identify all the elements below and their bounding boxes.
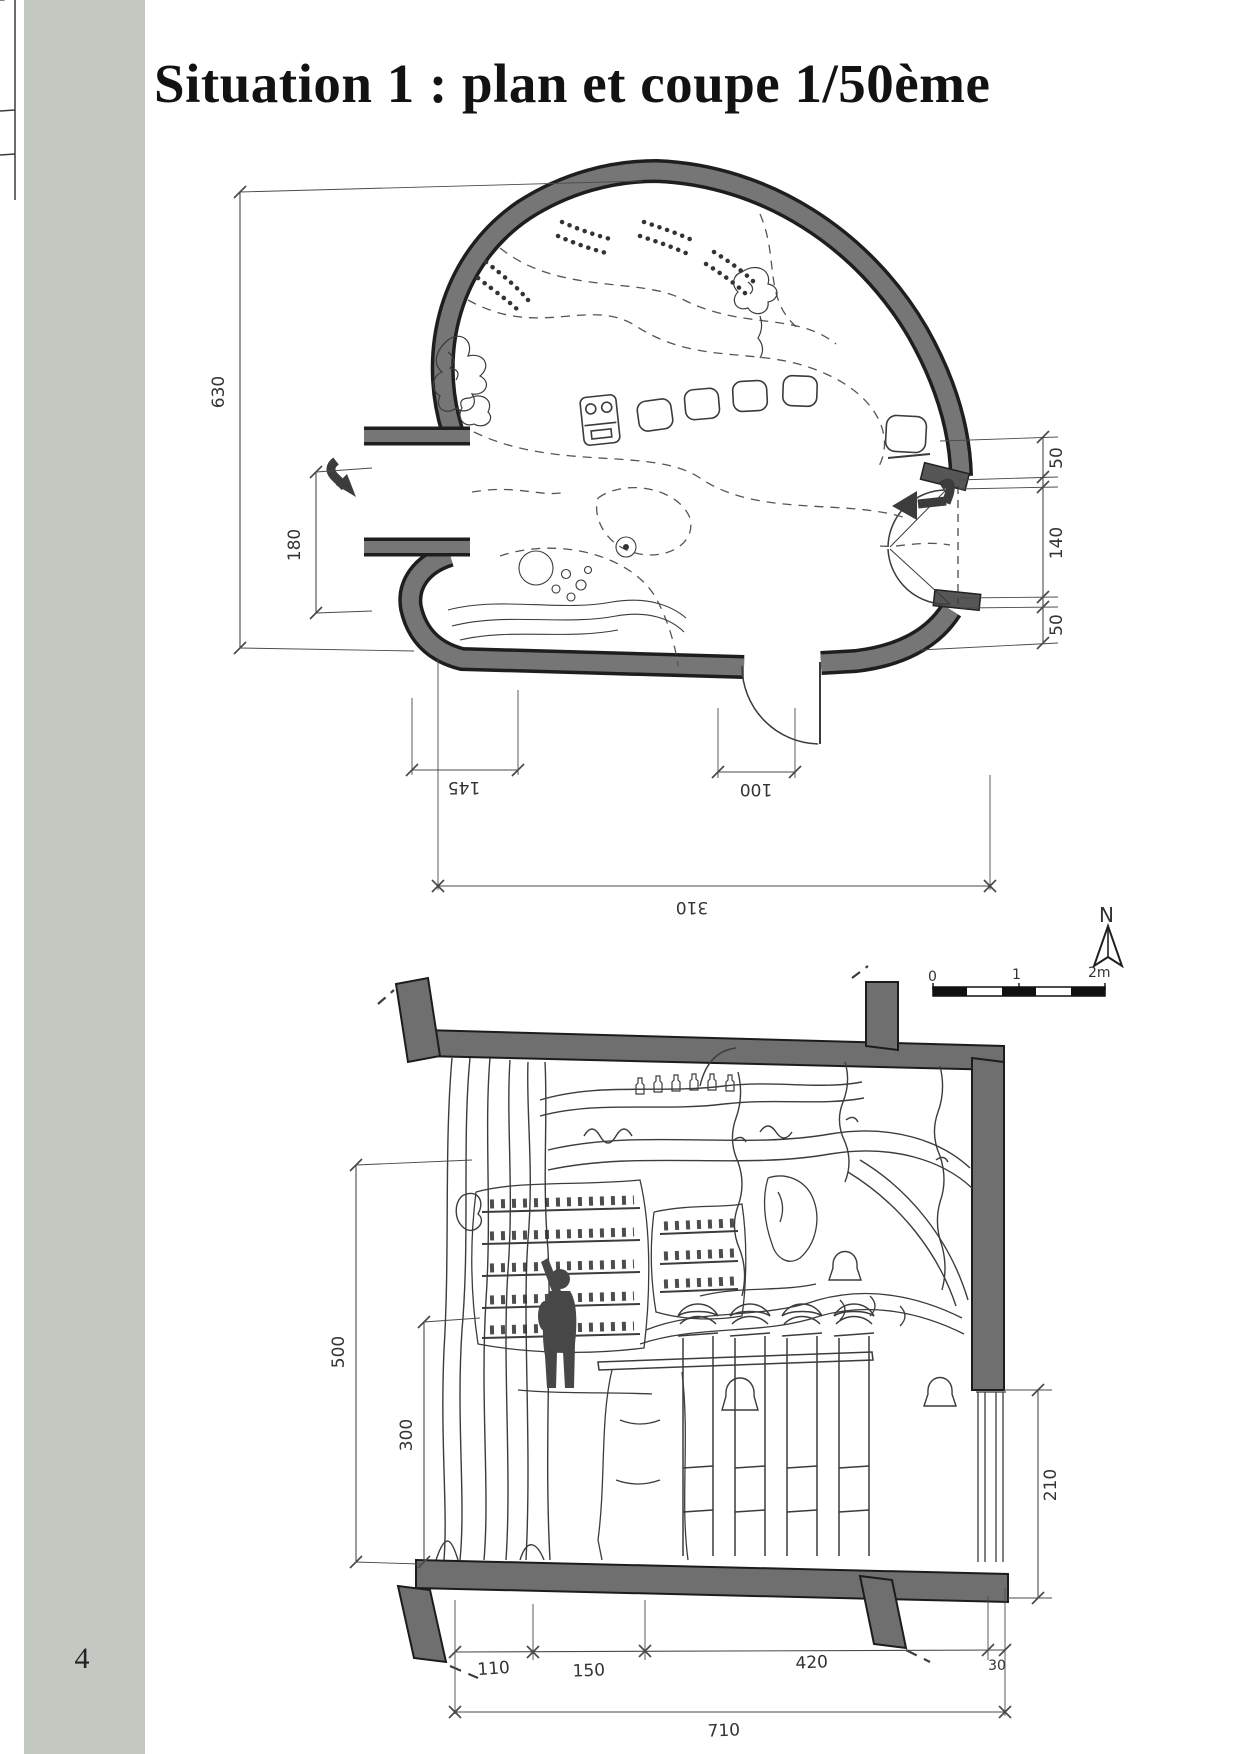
plan-cobble-dots bbox=[478, 222, 756, 312]
architectural-drawing: 630 180 50 140 50 145 100 310 N bbox=[0, 0, 1241, 1754]
plan-dim-140: 140 bbox=[1047, 527, 1067, 559]
section-dim-500: 500 bbox=[329, 1336, 349, 1368]
plan-dim-50-top: 50 bbox=[1047, 447, 1067, 469]
section-branches bbox=[540, 1048, 972, 1306]
plan-dim-310: 310 bbox=[676, 897, 708, 917]
section-drawing: 500 300 210 110 150 420 30 710 bbox=[0, 0, 1061, 1742]
plan-plant-right bbox=[734, 268, 777, 358]
section-dim-110: 110 bbox=[477, 1658, 511, 1680]
section-right-window bbox=[976, 1392, 1006, 1562]
plan-dimensions bbox=[234, 181, 1058, 892]
section-bar-stools bbox=[0, 0, 874, 1556]
scale-two-m: 2m bbox=[1088, 965, 1111, 981]
plan-dim-180: 180 bbox=[285, 529, 305, 561]
plan-wall-fill bbox=[410, 171, 961, 667]
plan-dim-100: 100 bbox=[740, 779, 772, 799]
plan-dimension-labels: 630 180 50 140 50 145 100 310 bbox=[209, 376, 1067, 917]
north-arrow-icon: N bbox=[1094, 903, 1122, 966]
section-dim-150: 150 bbox=[572, 1660, 605, 1681]
section-shelves bbox=[472, 1180, 746, 1352]
plan-dim-630: 630 bbox=[209, 376, 229, 408]
section-dim-420: 420 bbox=[795, 1652, 828, 1674]
section-ground-line bbox=[518, 1390, 652, 1394]
plan-dim-50-bottom: 50 bbox=[1047, 614, 1067, 636]
document-page: 4 Situation 1 : plan et coupe 1/50ème bbox=[0, 0, 1241, 1754]
human-figure bbox=[538, 1258, 576, 1388]
plan-right-entrance bbox=[888, 463, 981, 611]
plan-entry-arrow-left bbox=[331, 461, 356, 497]
north-label: N bbox=[1099, 903, 1114, 927]
scale-one: 1 bbox=[1012, 967, 1021, 983]
section-dim-300: 300 bbox=[397, 1419, 417, 1451]
section-dim-30: 30 bbox=[988, 1658, 1006, 1674]
scale-bar: 0 1 2m bbox=[928, 965, 1111, 996]
plan-corridor-walls bbox=[364, 436, 470, 547]
scale-zero: 0 bbox=[928, 969, 937, 985]
plan-drawing: 630 180 50 140 50 145 100 310 N bbox=[209, 171, 1122, 996]
plan-bottom-door bbox=[742, 662, 820, 744]
plan-dim-145: 145 bbox=[448, 777, 480, 797]
section-dimensions bbox=[350, 1159, 1052, 1718]
section-tree-trunk bbox=[436, 1058, 550, 1560]
section-dim-210: 210 bbox=[1041, 1469, 1061, 1501]
plan-entry-arrow-right bbox=[892, 483, 950, 520]
section-dim-710: 710 bbox=[707, 1720, 740, 1741]
